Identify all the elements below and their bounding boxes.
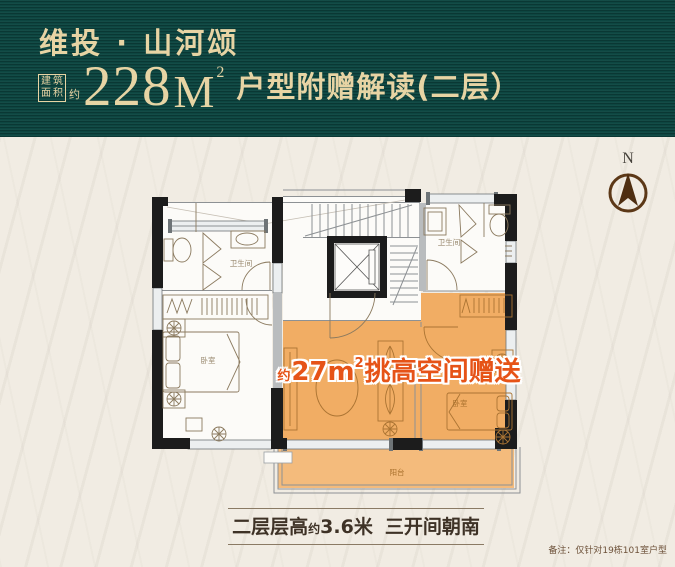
highlight-approx: 约 xyxy=(277,370,290,383)
poster-page: 维投 · 山河颂 建 筑 面 积 约 228 M 2 户型附赠解读(二层） N xyxy=(0,0,675,567)
highlight-unit-superscript: 2 xyxy=(355,357,364,370)
highlight-gift-label: 约 27 m 2 挑高空间赠送 xyxy=(281,359,517,385)
highlight-unit: m xyxy=(328,359,355,385)
bathroom-right-label: 卫生间 xyxy=(438,237,461,247)
caption-approx: 约 xyxy=(308,522,320,536)
bedroom-left-label: 卧室 xyxy=(201,355,216,365)
bathroom-left-floor xyxy=(162,203,272,291)
caption-part2: 3.6米 xyxy=(320,516,373,538)
elevator xyxy=(327,236,387,298)
highlight-suffix: 挑高空间赠送 xyxy=(365,359,521,385)
floor-caption: 二层层高约3.6米三开间朝南 xyxy=(228,508,484,545)
bathroom-left-label: 卫生间 xyxy=(230,258,253,268)
bedroom-right-label: 卧室 xyxy=(453,398,468,408)
caption-part1: 二层层高 xyxy=(232,516,308,538)
highlight-value: 27 xyxy=(291,359,327,385)
footnote: 备注：仅针对19栋101室户型 xyxy=(548,543,667,556)
floorplan: 卫生间 卧室 卫生间 卧室 阳台 xyxy=(0,0,675,567)
caption-part3: 三开间朝南 xyxy=(385,516,480,538)
bathroom-right-floor xyxy=(423,203,507,291)
balcony-label: 阳台 xyxy=(390,467,405,477)
